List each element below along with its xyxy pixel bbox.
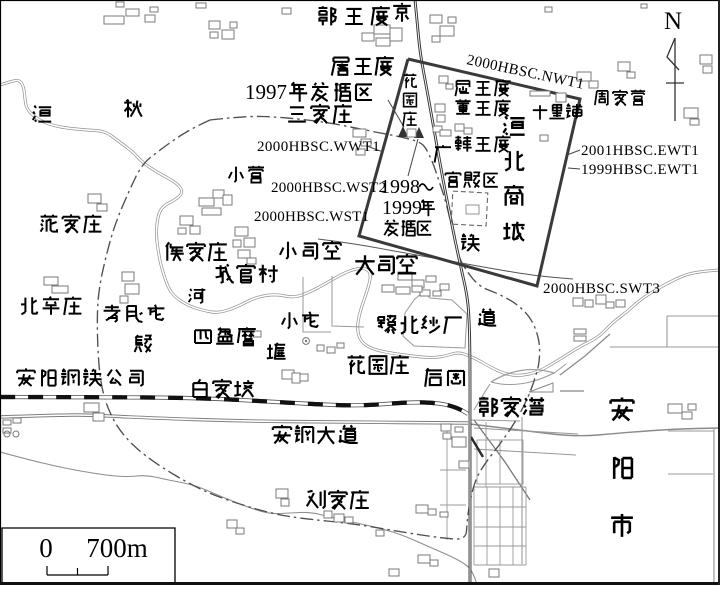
svg-text:700m: 700m — [86, 533, 148, 563]
svg-text:2000HBSC.WWT1: 2000HBSC.WWT1 — [257, 139, 380, 155]
svg-text:N: N — [664, 8, 682, 35]
svg-text:2000HBSC.WST2: 2000HBSC.WST2 — [271, 180, 386, 196]
svg-text:1998: 1998 — [380, 176, 420, 198]
svg-text:0: 0 — [39, 533, 53, 563]
svg-text:2000HBSC.WST1: 2000HBSC.WST1 — [254, 209, 369, 225]
svg-text:1999HBSC.EWT1: 1999HBSC.EWT1 — [581, 162, 699, 178]
svg-text:2000HBSC.SWT3: 2000HBSC.SWT3 — [543, 281, 660, 297]
svg-text:1999: 1999 — [382, 197, 422, 219]
svg-text:1997: 1997 — [245, 80, 287, 104]
svg-text:2001HBSC.EWT1: 2001HBSC.EWT1 — [581, 143, 699, 159]
